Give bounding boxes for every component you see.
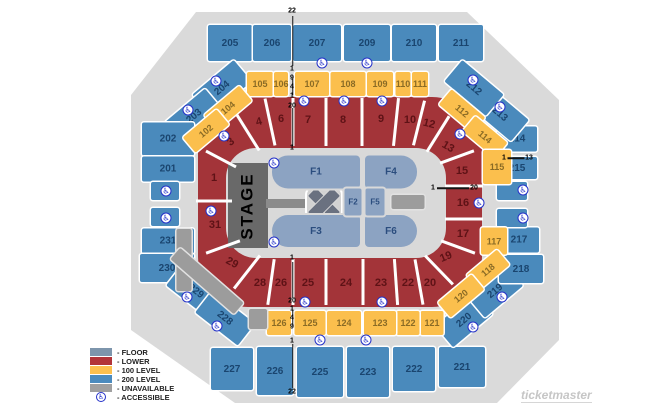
section-209[interactable]: 209 xyxy=(344,25,390,61)
row-number: 1 xyxy=(290,145,294,152)
section-label: 126 xyxy=(271,318,286,328)
accessible-icon: ♿ xyxy=(377,297,388,308)
section-206[interactable]: 206 xyxy=(253,25,291,61)
section-207[interactable]: 207 xyxy=(293,25,341,61)
section-label: 210 xyxy=(406,38,423,49)
row-marker-line xyxy=(292,344,294,388)
legend-item: - 200 LEVEL xyxy=(90,375,174,383)
row-number: 20 xyxy=(288,298,296,305)
section-F1[interactable]: F1 xyxy=(272,156,360,189)
row-number: 1 xyxy=(290,255,294,262)
section-label: 230 xyxy=(159,263,176,274)
legend-swatch xyxy=(90,357,112,365)
section-108[interactable]: 108 xyxy=(331,72,366,96)
accessible-icon: ♿ xyxy=(299,96,310,107)
section-label: 207 xyxy=(309,38,326,49)
section-105[interactable]: 105 xyxy=(247,72,273,96)
section-31[interactable]: 31 xyxy=(205,218,225,232)
section-10[interactable]: 10 xyxy=(400,113,420,127)
brand-logo: ticketmaster xyxy=(521,389,592,403)
accessible-icon: ♿ xyxy=(211,76,222,87)
accessible-icon: ♿ xyxy=(497,292,508,303)
accessible-icon: ♿ xyxy=(161,186,172,197)
accessible-icon: ♿ xyxy=(361,335,372,346)
section-label: 111 xyxy=(413,79,427,89)
section-label: 222 xyxy=(406,364,423,375)
section-label: 6 xyxy=(278,113,284,125)
stage-label: STAGE xyxy=(238,172,258,239)
row-number: 13 xyxy=(525,155,533,162)
section-115[interactable]: 115 xyxy=(483,150,511,184)
section-6[interactable]: 6 xyxy=(271,112,291,126)
section-123[interactable]: 123 xyxy=(364,311,396,335)
row-marker-line xyxy=(292,108,294,146)
legend-swatch xyxy=(90,348,112,356)
accessible-icon: ♿ xyxy=(362,58,373,69)
row-number: 1 xyxy=(290,338,294,345)
row-marker-line xyxy=(292,262,294,298)
row-number: 1 xyxy=(431,185,435,192)
section-label: 109 xyxy=(372,79,387,89)
section-label: 10 xyxy=(404,114,416,126)
section-label: F2 xyxy=(348,198,357,207)
section-223[interactable]: 223 xyxy=(347,347,389,397)
accessible-icon: ♿ xyxy=(315,335,326,346)
section-label: 117 xyxy=(487,236,502,246)
section-label: F1 xyxy=(310,167,322,178)
aisle-divider xyxy=(325,259,328,305)
section-label: 20 xyxy=(424,277,436,289)
row-number: 4 xyxy=(290,84,294,91)
section-label: 226 xyxy=(267,366,284,377)
section-label: 206 xyxy=(264,38,281,49)
section-label: 218 xyxy=(513,264,530,275)
section-111[interactable]: 111 xyxy=(412,72,428,96)
section-221[interactable]: 221 xyxy=(439,347,485,387)
accessible-icon: ♿ xyxy=(161,213,172,224)
section-122[interactable]: 122 xyxy=(397,311,420,335)
section-label: 125 xyxy=(302,318,317,328)
accessible-icon: ♿ xyxy=(219,131,230,142)
row-number: 1 xyxy=(290,66,294,73)
section-label: 16 xyxy=(457,197,469,209)
section-15[interactable]: 15 xyxy=(452,164,472,178)
accessible-icon: ♿ xyxy=(206,206,217,217)
row-number: 4 xyxy=(290,315,294,322)
aisle-divider xyxy=(361,98,364,146)
section-7[interactable]: 7 xyxy=(298,113,318,127)
row-marker-line xyxy=(508,157,525,159)
legend-swatch xyxy=(90,375,112,383)
accessible-icon: ♿ xyxy=(183,105,194,116)
section-label: 7 xyxy=(305,114,311,126)
row-number: 1 xyxy=(502,155,506,162)
section-label: 12 xyxy=(422,117,437,132)
section-label: 114 xyxy=(476,128,494,145)
section-F5[interactable]: F5 xyxy=(366,189,385,216)
section-block xyxy=(392,195,425,209)
legend-item: - 100 LEVEL xyxy=(90,366,174,374)
section-label: 8 xyxy=(340,114,346,126)
section-label: 24 xyxy=(340,277,352,289)
section-label: 102 xyxy=(197,122,215,139)
section-label: 201 xyxy=(160,164,177,175)
row-number: 20 xyxy=(288,103,296,110)
section-label: F6 xyxy=(385,226,397,237)
section-F2[interactable]: F2 xyxy=(345,189,362,216)
accessible-icon: ♿ xyxy=(468,322,479,333)
section-label: 122 xyxy=(400,318,415,328)
accessible-icon: ♿ xyxy=(300,297,311,308)
section-label: 25 xyxy=(302,277,314,289)
section-label: 217 xyxy=(511,235,528,246)
section-label: 115 xyxy=(490,162,505,172)
section-label: 31 xyxy=(209,219,221,231)
row-number: 22 xyxy=(288,389,296,396)
row-number: 9 xyxy=(290,324,294,331)
legend-item: - FLOOR xyxy=(90,348,174,356)
section-label: 9 xyxy=(378,113,384,125)
section-label: 106 xyxy=(273,79,288,89)
section-121[interactable]: 121 xyxy=(421,311,444,335)
section-124[interactable]: 124 xyxy=(327,311,361,335)
section-label: 227 xyxy=(224,364,241,375)
aisle-divider xyxy=(196,200,232,203)
row-marker-line xyxy=(292,16,294,66)
row-number: 9 xyxy=(290,75,294,82)
section-201[interactable]: 201 xyxy=(142,157,194,182)
section-label: 205 xyxy=(222,38,239,49)
section-23[interactable]: 23 xyxy=(371,276,391,290)
section-label: 15 xyxy=(456,165,468,177)
section-F3[interactable]: F3 xyxy=(272,215,360,247)
section-8[interactable]: 8 xyxy=(333,113,353,127)
section-17[interactable]: 17 xyxy=(453,227,473,241)
legend-label: - ACCESSIBLE xyxy=(117,393,170,402)
accessible-icon: ♿ xyxy=(495,102,506,113)
section-125[interactable]: 125 xyxy=(295,311,326,335)
section-205[interactable]: 205 xyxy=(208,25,252,61)
section-9[interactable]: 9 xyxy=(371,112,391,126)
section-222[interactable]: 222 xyxy=(393,347,435,391)
catwalk xyxy=(266,199,308,208)
legend-label: - 100 LEVEL xyxy=(117,366,160,375)
aisle-divider xyxy=(445,218,483,221)
row-number: 22 xyxy=(288,8,296,15)
legend-label: - LOWER xyxy=(117,357,150,366)
legend-label: - UNAVAILABLE xyxy=(117,384,174,393)
section-F4[interactable]: F4 xyxy=(365,156,417,189)
accessible-icon: ♿ xyxy=(212,321,223,332)
section-110[interactable]: 110 xyxy=(396,72,411,96)
aisle-divider xyxy=(362,259,365,305)
section-label: 231 xyxy=(160,236,177,247)
accessible-icon: ♿ xyxy=(182,292,193,303)
section-24[interactable]: 24 xyxy=(336,276,356,290)
legend-item: - LOWER xyxy=(90,357,174,365)
section-label: 221 xyxy=(454,362,471,373)
accessible-icon: ♿ xyxy=(377,96,388,107)
section-F6[interactable]: F6 xyxy=(365,215,417,247)
section-225[interactable]: 225 xyxy=(297,347,343,397)
section-22[interactable]: 22 xyxy=(398,276,418,290)
section-25[interactable]: 25 xyxy=(298,276,318,290)
section-label: 123 xyxy=(372,318,387,328)
section-label: 118 xyxy=(479,261,497,278)
section-label: 1 xyxy=(211,172,217,184)
section-227[interactable]: 227 xyxy=(211,348,253,390)
section-label: 225 xyxy=(312,367,329,378)
section-107[interactable]: 107 xyxy=(295,72,329,96)
section-20[interactable]: 20 xyxy=(420,276,440,290)
row-marker-line xyxy=(437,187,469,189)
section-block xyxy=(249,309,267,329)
section-126[interactable]: 126 xyxy=(267,311,291,335)
section-210[interactable]: 210 xyxy=(392,25,436,61)
row-number: 1 xyxy=(290,93,294,100)
section-211[interactable]: 211 xyxy=(439,25,483,61)
section-label: 22 xyxy=(402,277,414,289)
accessible-icon: ♿ xyxy=(468,75,479,86)
section-label: 26 xyxy=(275,277,287,289)
legend: - FLOOR- LOWER- 100 LEVEL- 200 LEVEL- UN… xyxy=(90,348,174,402)
section-label: 17 xyxy=(457,228,469,240)
section-label: F5 xyxy=(370,198,379,207)
accessible-icon: ♿ xyxy=(518,185,529,196)
legend-item: ♿- ACCESSIBLE xyxy=(90,393,174,401)
accessible-icon: ♿ xyxy=(474,198,485,209)
section-label: 211 xyxy=(453,38,469,49)
section-label: 104 xyxy=(219,99,237,116)
accessible-icon: ♿ xyxy=(96,392,106,402)
section-28[interactable]: 28 xyxy=(250,276,270,290)
section-1[interactable]: 1 xyxy=(204,171,224,185)
section-label: 121 xyxy=(424,318,439,328)
legend-swatch xyxy=(90,384,112,392)
section-label: 4 xyxy=(255,115,264,128)
section-26[interactable]: 26 xyxy=(271,276,291,290)
section-label: 105 xyxy=(252,79,267,89)
legend-label: - FLOOR xyxy=(117,348,148,357)
accessible-icon: ♿ xyxy=(317,58,328,69)
section-label: 209 xyxy=(359,38,376,49)
section-label: 124 xyxy=(336,318,351,328)
stage: STAGE xyxy=(228,163,268,248)
section-label: F3 xyxy=(310,226,322,237)
section-label: 23 xyxy=(375,277,387,289)
section-109[interactable]: 109 xyxy=(367,72,393,96)
legend-swatch xyxy=(90,366,112,374)
accessible-icon: ♿ xyxy=(339,96,350,107)
section-label: 110 xyxy=(396,79,411,89)
section-label: 223 xyxy=(360,367,377,378)
accessible-icon: ♿ xyxy=(518,213,529,224)
accessible-icon: ♿ xyxy=(269,158,280,169)
legend-item: - UNAVAILABLE xyxy=(90,384,174,392)
section-label: 202 xyxy=(160,134,177,145)
row-number: 20 xyxy=(470,185,478,192)
legend-label: - 200 LEVEL xyxy=(117,375,160,384)
section-label: 120 xyxy=(452,287,470,304)
accessible-icon: ♿ xyxy=(455,129,466,140)
section-label: 215 xyxy=(509,163,526,174)
section-label: 112 xyxy=(453,102,471,119)
section-label: 28 xyxy=(254,277,266,289)
section-label: 107 xyxy=(304,79,319,89)
section-106[interactable]: 106 xyxy=(274,72,288,96)
row-number: 1 xyxy=(290,306,294,313)
section-label: F4 xyxy=(385,167,397,178)
accessible-icon: ♿ xyxy=(269,237,280,248)
legend-swatch-box: ♿ xyxy=(90,392,112,402)
section-16[interactable]: 16 xyxy=(453,196,473,210)
section-label: 108 xyxy=(340,79,355,89)
aisle-divider xyxy=(325,98,328,146)
